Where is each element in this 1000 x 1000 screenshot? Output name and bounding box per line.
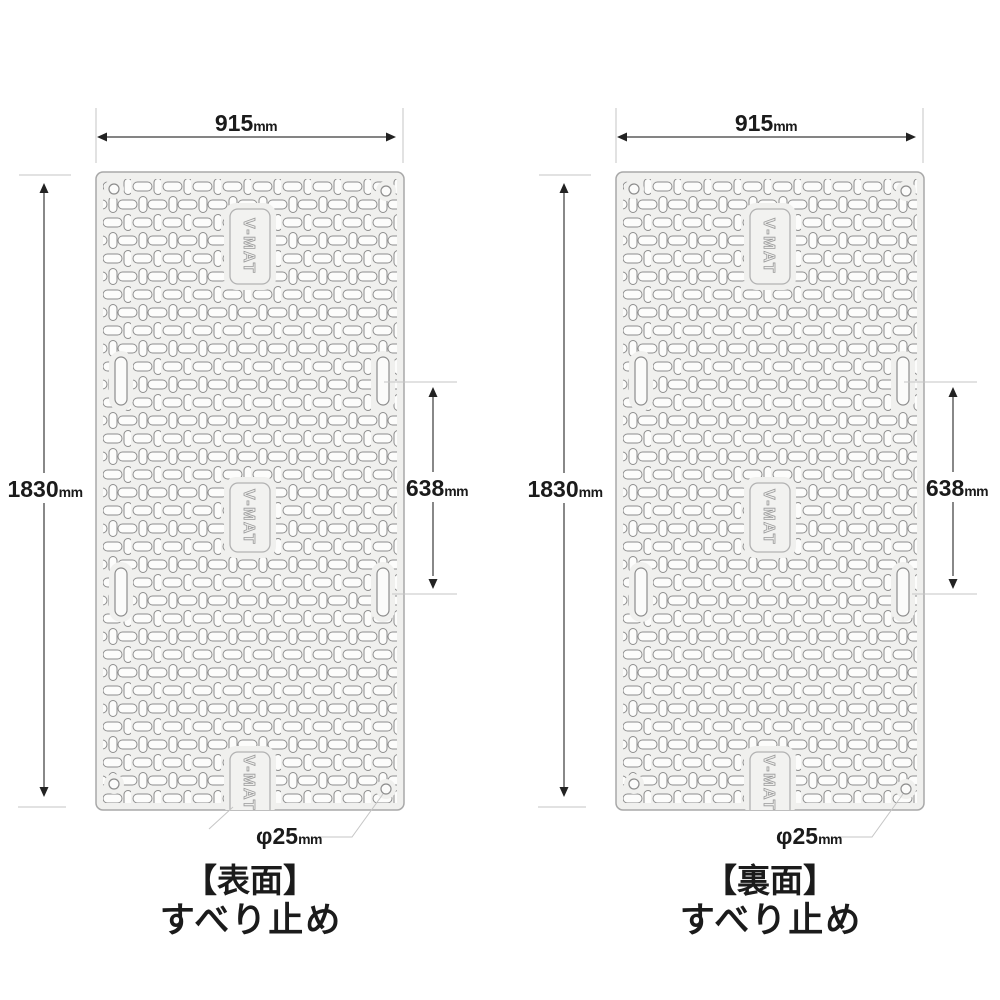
back-panel-title: 【裏面】 <box>704 862 836 899</box>
back-panel-subtitle: すべり止め <box>680 901 863 940</box>
diagram-canvas: V-MAT V-MAT V-MAT <box>0 0 1000 1000</box>
front-mat <box>7 108 468 849</box>
product-dimension-diagram: V-MAT V-MAT V-MAT <box>0 0 1000 1000</box>
front-panel-title: 【表面】 <box>184 862 316 899</box>
back-mat <box>527 108 988 849</box>
front-panel-subtitle: すべり止め <box>160 901 343 940</box>
